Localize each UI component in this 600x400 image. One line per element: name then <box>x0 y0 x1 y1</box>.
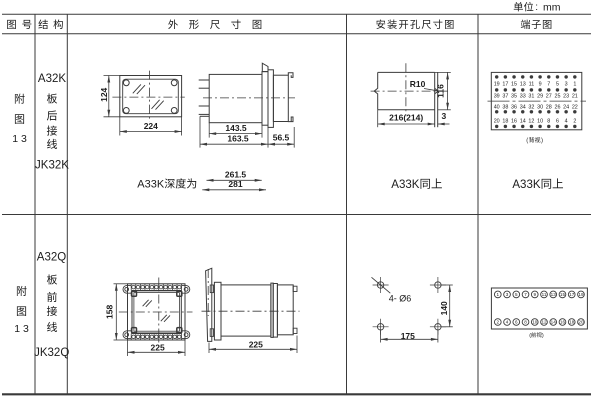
svg-text:26: 26 <box>554 105 560 111</box>
svg-text:JK32Q: JK32Q <box>34 347 69 359</box>
svg-text:24: 24 <box>563 105 569 111</box>
svg-text:19: 19 <box>494 81 500 87</box>
svg-text:4: 4 <box>506 320 509 325</box>
svg-text:36: 36 <box>511 105 517 111</box>
svg-text:): ) <box>541 138 543 144</box>
svg-text:A33K: A33K <box>391 179 419 191</box>
svg-text:5: 5 <box>556 81 559 87</box>
svg-text:(: ( <box>526 138 528 144</box>
svg-text:281: 281 <box>228 179 242 189</box>
svg-text:6: 6 <box>556 119 559 125</box>
svg-text:7: 7 <box>547 81 550 87</box>
svg-text:12: 12 <box>528 119 534 125</box>
svg-text:20: 20 <box>578 320 584 325</box>
svg-text:140: 140 <box>439 301 449 315</box>
svg-text:225: 225 <box>249 339 263 349</box>
svg-text:14: 14 <box>551 320 557 325</box>
svg-text:2: 2 <box>573 119 576 125</box>
svg-text:32: 32 <box>528 105 534 111</box>
svg-text:225: 225 <box>151 342 165 352</box>
svg-text:A32Q: A32Q <box>37 252 66 264</box>
svg-text:175: 175 <box>401 331 415 341</box>
svg-text:143.5: 143.5 <box>225 123 247 133</box>
svg-text:11: 11 <box>542 292 547 297</box>
svg-text:13: 13 <box>551 292 557 297</box>
svg-text:116: 116 <box>436 84 446 98</box>
svg-text:10: 10 <box>532 320 538 325</box>
svg-text:1: 1 <box>497 292 500 297</box>
svg-text:10: 10 <box>537 119 543 125</box>
svg-text:224: 224 <box>144 121 158 131</box>
svg-text:15: 15 <box>560 292 566 297</box>
svg-text:34: 34 <box>520 105 526 111</box>
svg-text:35: 35 <box>511 94 517 100</box>
svg-text:25: 25 <box>554 94 560 100</box>
svg-text:R10: R10 <box>410 79 426 89</box>
svg-text:A33K: A33K <box>137 179 165 191</box>
svg-text:31: 31 <box>528 94 534 100</box>
svg-text::: : <box>535 2 538 13</box>
svg-text:17: 17 <box>569 292 575 297</box>
svg-text:20: 20 <box>494 119 500 125</box>
svg-text:13: 13 <box>520 81 526 87</box>
svg-text:124: 124 <box>99 87 109 101</box>
svg-text:4: 4 <box>565 119 568 125</box>
svg-text:JK32K: JK32K <box>35 159 69 171</box>
svg-text:16: 16 <box>511 119 517 125</box>
svg-text:14: 14 <box>520 119 526 125</box>
svg-text:29: 29 <box>537 94 543 100</box>
svg-text:39: 39 <box>494 94 500 100</box>
svg-text:30: 30 <box>537 105 543 111</box>
svg-text:A32K: A32K <box>38 73 66 85</box>
svg-text:163.5: 163.5 <box>227 133 249 143</box>
svg-text:37: 37 <box>502 94 508 100</box>
svg-text:5: 5 <box>515 292 518 297</box>
svg-text:3: 3 <box>565 81 568 87</box>
svg-text:16: 16 <box>560 320 566 325</box>
svg-text:216(214): 216(214) <box>389 113 423 123</box>
svg-text:18: 18 <box>502 119 508 125</box>
svg-text:261.5: 261.5 <box>225 170 247 180</box>
svg-text:38: 38 <box>502 105 508 111</box>
svg-text:3: 3 <box>442 111 447 121</box>
svg-text:15: 15 <box>511 81 517 87</box>
svg-text:22: 22 <box>572 105 578 111</box>
svg-text:1 3: 1 3 <box>14 323 29 335</box>
svg-text:mm: mm <box>543 1 561 13</box>
svg-text:17: 17 <box>502 81 508 87</box>
svg-text:11: 11 <box>529 81 535 87</box>
svg-text:27: 27 <box>546 94 552 100</box>
svg-text:21: 21 <box>572 94 578 100</box>
svg-text:9: 9 <box>533 292 536 297</box>
svg-text:12: 12 <box>541 320 547 325</box>
svg-text:4- Ø6: 4- Ø6 <box>389 294 412 304</box>
svg-text:33: 33 <box>520 94 526 100</box>
svg-text:7: 7 <box>524 292 527 297</box>
svg-text:18: 18 <box>569 320 575 325</box>
svg-text:1: 1 <box>573 81 576 87</box>
svg-text:56.5: 56.5 <box>273 132 290 142</box>
svg-text:9: 9 <box>539 81 542 87</box>
svg-text:8: 8 <box>524 320 527 325</box>
svg-text:A33K: A33K <box>512 179 540 191</box>
svg-text:2: 2 <box>497 320 500 325</box>
svg-text:28: 28 <box>546 105 552 111</box>
svg-text:): ) <box>542 333 544 339</box>
svg-text:1 3: 1 3 <box>12 133 27 145</box>
svg-text:158: 158 <box>104 305 114 319</box>
svg-text:6: 6 <box>515 320 518 325</box>
svg-text:(: ( <box>529 333 531 339</box>
svg-text:3: 3 <box>506 292 509 297</box>
svg-text:40: 40 <box>494 105 500 111</box>
svg-text:23: 23 <box>563 94 569 100</box>
svg-text:8: 8 <box>547 119 550 125</box>
svg-text:19: 19 <box>578 292 584 297</box>
